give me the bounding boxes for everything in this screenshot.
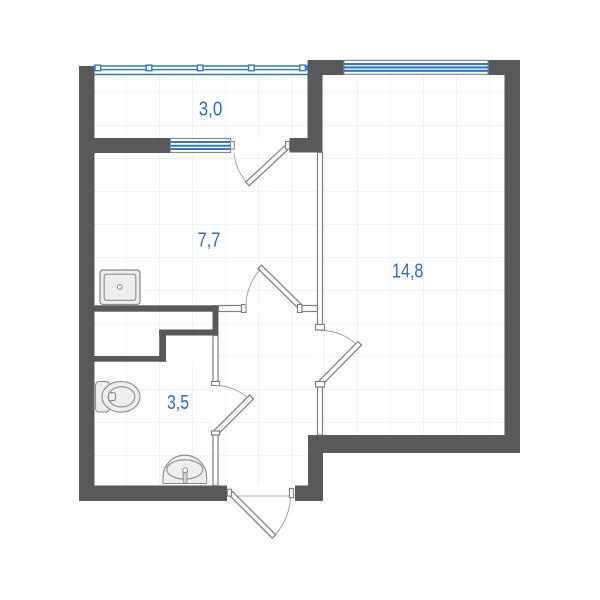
svg-text:3,0: 3,0 bbox=[199, 99, 223, 121]
svg-text:14,8: 14,8 bbox=[392, 261, 424, 283]
svg-text:7,7: 7,7 bbox=[198, 229, 221, 251]
svg-text:3,5: 3,5 bbox=[167, 392, 189, 414]
